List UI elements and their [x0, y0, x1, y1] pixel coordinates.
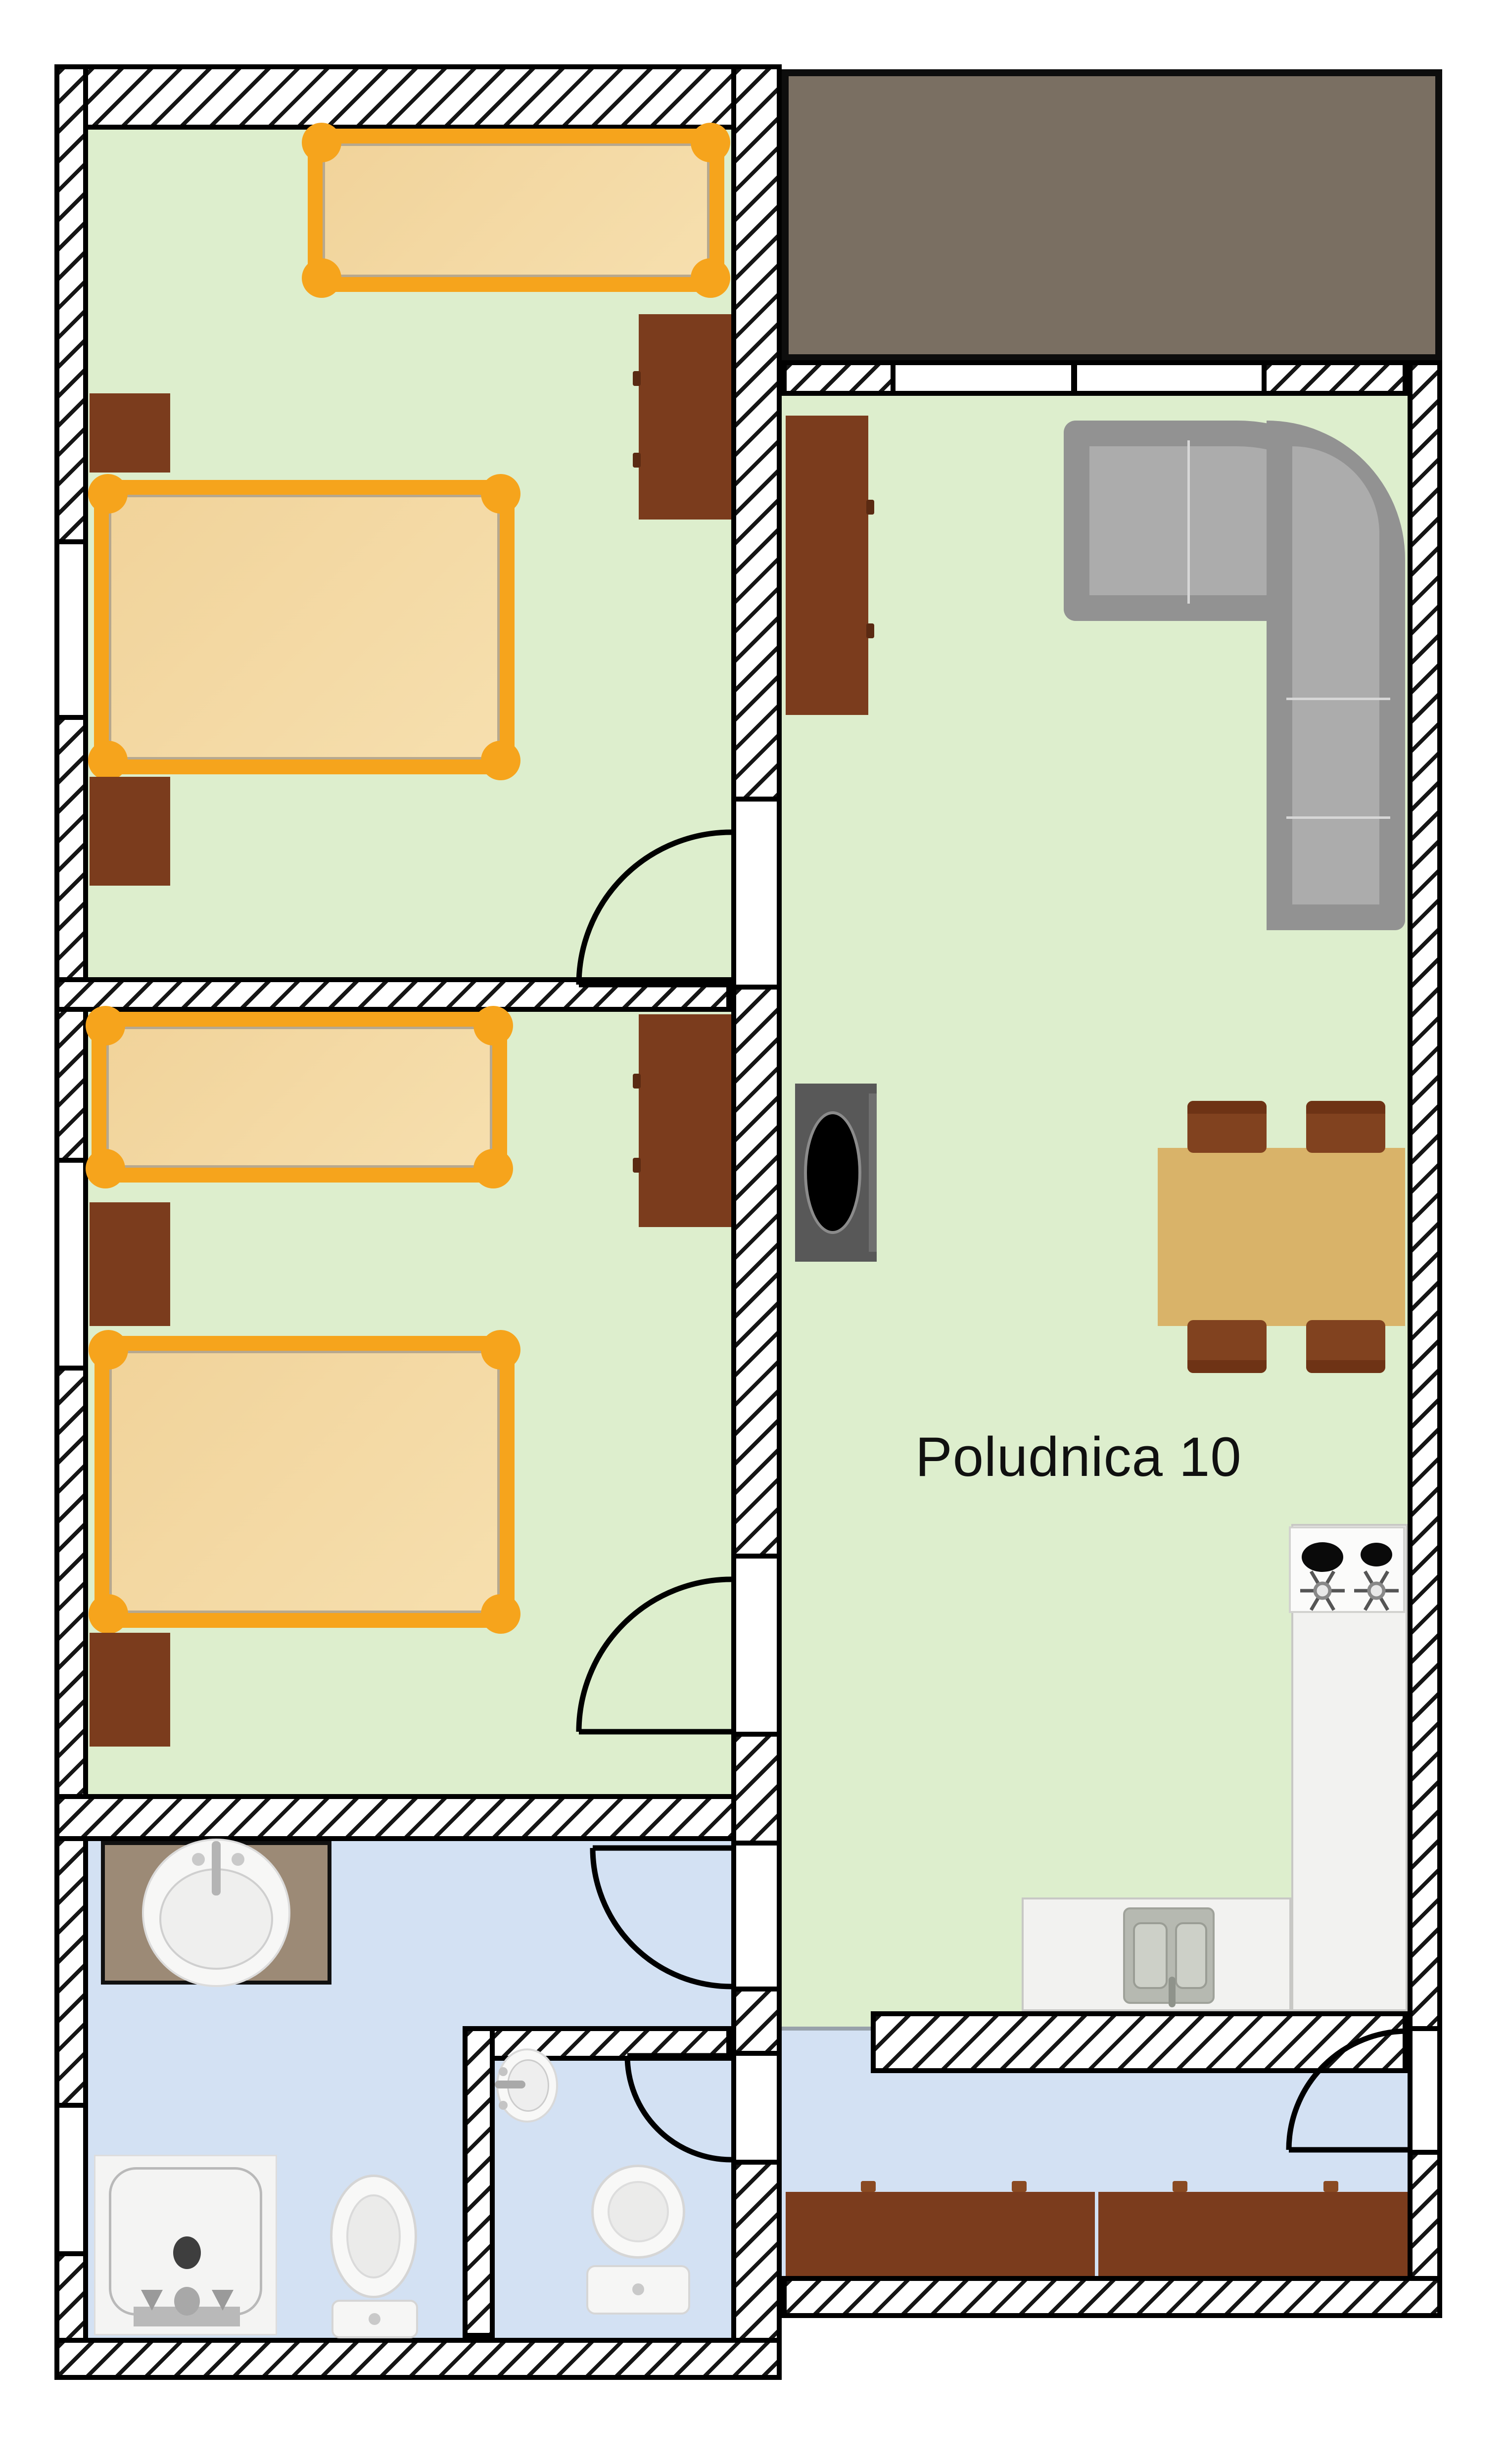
dining-chair: [1187, 1101, 1267, 1153]
cabinet-knob: [1173, 2181, 1187, 2192]
door-opening-bedroom2: [731, 1559, 782, 1732]
wall-middle-4: [731, 1987, 782, 2056]
mattress: [109, 495, 500, 759]
sofa-seam: [1286, 698, 1390, 700]
wall-bathroom-bottom: [54, 2338, 782, 2380]
wall-top: [54, 64, 782, 130]
bed-post: [691, 123, 730, 162]
wall-left-2: [54, 715, 88, 1163]
door-opening-entry: [1408, 2031, 1442, 2150]
faucet-handle: [192, 1853, 205, 1866]
faucet-handle: [499, 2101, 508, 2110]
wall-hall-bottom: [782, 2276, 1442, 2318]
wardrobe-knob: [633, 453, 641, 468]
dining-chair: [1187, 1320, 1267, 1373]
shower-drain: [173, 2236, 201, 2269]
wall-middle-3: [731, 1732, 782, 1846]
bedroom1-nightstand: [90, 393, 170, 473]
bed-post: [86, 1149, 125, 1188]
toilet-flush-button: [632, 2283, 644, 2295]
shower-control: [212, 2290, 234, 2311]
bed-post: [481, 1330, 520, 1370]
cabinet-knob: [1323, 2181, 1338, 2192]
wall-under-terrace-left: [782, 360, 895, 396]
bedroom2-single-bed: [92, 1012, 507, 1183]
bathroom-sink-faucet: [212, 1841, 221, 1895]
sofa-seam: [1187, 440, 1190, 604]
kitchen-sink-basin: [1175, 1922, 1207, 1989]
bed-post: [88, 741, 128, 780]
living-room-cabinet: [786, 416, 868, 715]
dining-chair: [1306, 1320, 1385, 1373]
cabinet-knob: [866, 623, 874, 638]
sofa-right-arm: [1267, 421, 1405, 930]
dining-table: [1158, 1148, 1405, 1326]
shower-control: [141, 2290, 163, 2311]
bed-post: [86, 1006, 125, 1045]
mattress: [323, 143, 709, 277]
corner-sofa: [1064, 421, 1405, 930]
bed-post: [473, 1149, 513, 1188]
door-opening-wc: [731, 2056, 782, 2160]
terrace: [782, 69, 1442, 361]
dining-chair: [1306, 1101, 1385, 1153]
wall-under-terrace-right: [1262, 360, 1408, 396]
shower-knob: [174, 2287, 200, 2316]
bed-post: [302, 258, 341, 298]
bedroom1-wardrobe: [639, 314, 731, 520]
floor-transition-line: [782, 2027, 871, 2031]
window-bathroom: [54, 2108, 88, 2251]
bed-post: [89, 1594, 128, 1634]
bed-post: [88, 474, 128, 514]
wall-middle-1: [731, 64, 782, 802]
wall-left-1: [54, 64, 88, 544]
sofa-seam: [1286, 816, 1390, 819]
fireplace-stove: [795, 1084, 877, 1262]
bedroom1-nightstand-2: [90, 777, 170, 886]
bedroom2-double-bed: [94, 1336, 515, 1628]
cabinet-knob: [861, 2181, 876, 2192]
bed-post: [302, 123, 341, 162]
wc-sink-faucet: [495, 2081, 525, 2088]
chair-back: [1306, 1101, 1385, 1114]
faucet-handle: [232, 1853, 244, 1866]
wall-right-1: [1408, 360, 1442, 2031]
mattress: [109, 1351, 500, 1613]
bedroom2-nightstand: [90, 1202, 170, 1326]
mattress: [106, 1027, 492, 1168]
stove-burner-small: [1361, 1543, 1392, 1566]
kitchen-sink-basin: [1133, 1922, 1168, 1989]
wall-middle-2: [731, 985, 782, 1559]
faucet-handle: [499, 2067, 508, 2076]
toilet-flush-button: [369, 2313, 380, 2325]
wardrobe-knob: [633, 1158, 641, 1173]
bedroom1-double-bed: [94, 480, 515, 774]
bed-post: [691, 258, 730, 298]
bed-post: [481, 741, 520, 780]
bed-post: [89, 1330, 128, 1370]
chair-back: [1187, 1101, 1267, 1114]
toilet-bowl-inner: [346, 2194, 401, 2278]
bedroom2-wardrobe: [639, 1014, 731, 1227]
wardrobe-knob: [633, 1074, 641, 1089]
window-terrace-mullion: [1071, 365, 1077, 391]
wall-wc-top: [463, 2026, 731, 2061]
bed-post: [473, 1006, 513, 1045]
kitchen-stove: [1289, 1526, 1405, 1613]
chair-back: [1306, 1360, 1385, 1373]
apartment-label: Poludnica 10: [915, 1425, 1311, 1504]
wall-left-3: [54, 1366, 88, 2108]
wall-bedroom-divider: [54, 977, 731, 1012]
chair-back: [1187, 1360, 1267, 1373]
hall-cabinet: [1098, 2192, 1408, 2276]
fireplace-edge: [869, 1093, 877, 1252]
wall-bathroom-divider: [54, 1794, 782, 1841]
wall-wc-vertical: [463, 2026, 495, 2338]
wc-toilet-bowl-inner: [608, 2181, 669, 2242]
window-bedroom1: [54, 544, 88, 715]
wardrobe-knob: [633, 371, 641, 386]
floor-plan: Poludnica 10: [0, 0, 1508, 2464]
door-opening-bedroom1: [731, 802, 782, 985]
bed-post: [481, 474, 520, 514]
bedroom2-nightstand-2: [90, 1633, 170, 1747]
window-bedroom2: [54, 1163, 88, 1366]
stove-burner-large: [1302, 1542, 1343, 1572]
hall-cabinet: [786, 2192, 1095, 2276]
wall-kitchen-hall: [871, 2011, 1408, 2073]
bedroom1-single-bed: [308, 129, 724, 292]
cabinet-knob: [866, 500, 874, 515]
door-opening-bathroom: [731, 1846, 782, 1987]
kitchen-faucet: [1169, 1977, 1176, 2007]
fireplace-opening: [804, 1111, 861, 1234]
window-terrace: [895, 360, 1262, 396]
cabinet-knob: [1012, 2181, 1027, 2192]
bed-post: [481, 1594, 520, 1634]
